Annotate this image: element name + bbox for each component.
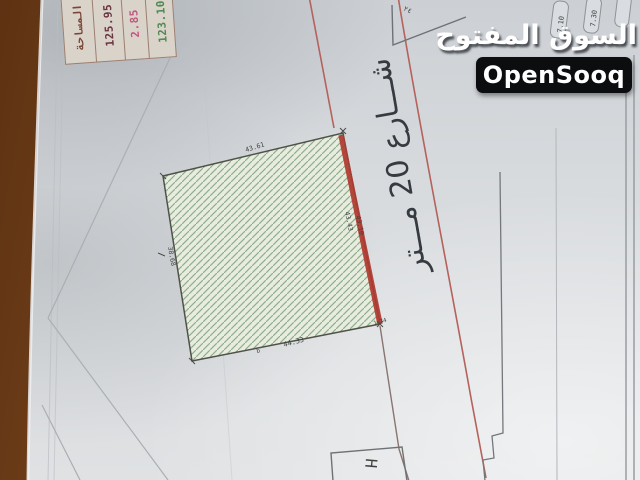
opensooq-arabic-logo: السوق المفتوح bbox=[435, 20, 637, 51]
sheet-border-zigzag bbox=[483, 172, 503, 480]
table-value-deduction: 2.85 bbox=[127, 8, 142, 37]
table-row-label-cell: المساحة bbox=[61, 0, 96, 64]
survey-data-table: المساحة 125.95 2.85 123.10 bbox=[60, 0, 177, 65]
sheet-border-line bbox=[556, 128, 557, 480]
street-left-edge bbox=[309, 0, 334, 128]
point-mark: b bbox=[256, 347, 262, 355]
building-h-mark: H bbox=[361, 458, 381, 469]
photo-of-survey-map: ٢٤ 7.10 7.30 43.61 44.33 38.68 43.43 43.… bbox=[0, 0, 640, 480]
paper-fold-line bbox=[54, 0, 64, 480]
opensooq-latin-logo: OpenSooq bbox=[483, 61, 625, 89]
table-value-cell: 125.95 bbox=[91, 0, 125, 62]
boundary-line bbox=[42, 405, 80, 480]
corner-annotation: ٢٤ bbox=[402, 5, 413, 16]
boundary-line bbox=[48, 318, 168, 480]
table-value-total-area: 125.95 bbox=[100, 3, 116, 47]
street-left-edge-lower bbox=[380, 326, 409, 480]
table-value-cell: 123.10 bbox=[144, 0, 178, 58]
boundary-line bbox=[48, 58, 170, 318]
table-row-label: المساحة bbox=[70, 3, 86, 50]
opensooq-logo-box: OpenSooq bbox=[476, 57, 632, 93]
paper-edge-highlight bbox=[28, 0, 42, 480]
paper-fold-line bbox=[48, 0, 58, 480]
table-value-net-area: 123.10 bbox=[153, 0, 169, 43]
